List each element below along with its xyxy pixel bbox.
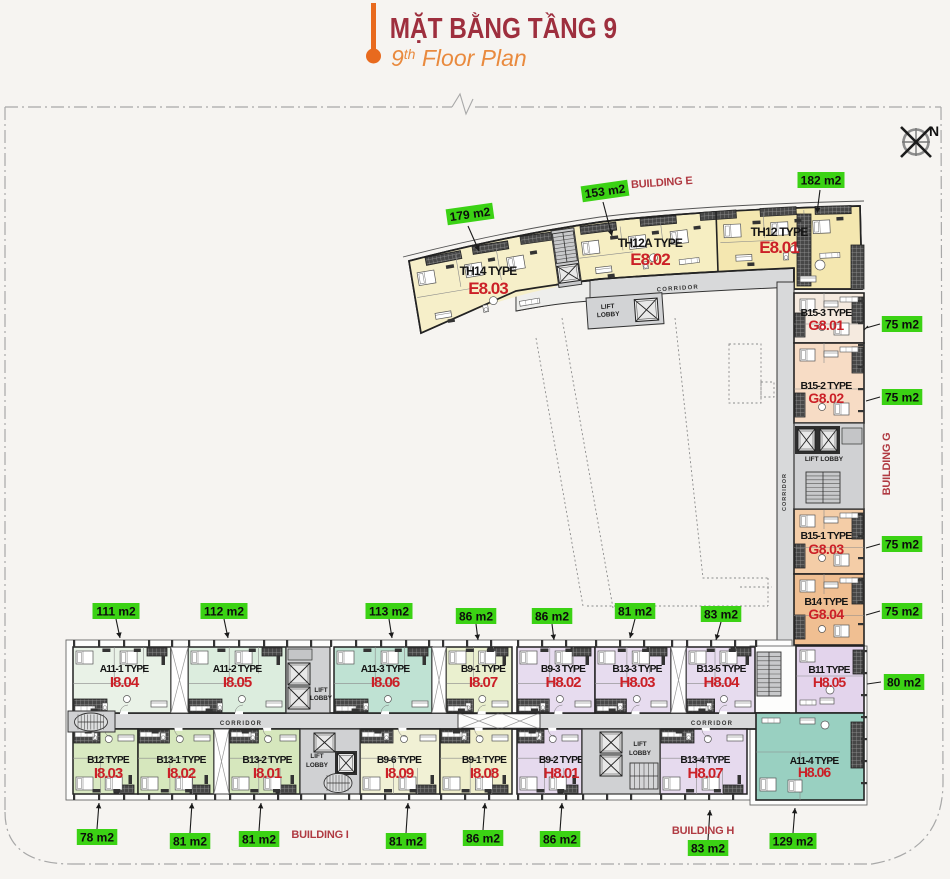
- svg-text:LIFT: LIFT: [310, 753, 323, 760]
- svg-text:78 m2: 78 m2: [80, 830, 114, 844]
- svg-text:H8.06: H8.06: [798, 764, 832, 780]
- svg-text:TH14 TYPE: TH14 TYPE: [460, 264, 518, 278]
- svg-text:LIFT: LIFT: [314, 687, 327, 694]
- svg-text:75 m2: 75 m2: [885, 537, 919, 551]
- svg-text:E8.02: E8.02: [630, 250, 670, 269]
- svg-text:E8.03: E8.03: [468, 279, 508, 298]
- svg-text:129 m2: 129 m2: [773, 834, 814, 848]
- svg-text:83 m2: 83 m2: [704, 607, 738, 621]
- svg-text:81 m2: 81 m2: [618, 604, 652, 618]
- svg-text:CORRIDOR: CORRIDOR: [220, 721, 262, 727]
- svg-text:H8.04: H8.04: [703, 674, 740, 691]
- svg-text:111 m2: 111 m2: [96, 604, 136, 618]
- svg-text:80 m2: 80 m2: [887, 675, 921, 689]
- svg-text:H8.05: H8.05: [813, 674, 847, 690]
- svg-text:I8.02: I8.02: [167, 765, 196, 782]
- svg-text:I8.06: I8.06: [371, 674, 400, 691]
- svg-text:I8.07: I8.07: [469, 674, 498, 691]
- svg-text:H8.03: H8.03: [619, 674, 655, 691]
- svg-text:LIFT LOBBY: LIFT LOBBY: [805, 456, 844, 463]
- svg-text:MẶT BẰNG TẦNG 9: MẶT BẰNG TẦNG 9: [390, 11, 617, 45]
- svg-text:H8.01: H8.01: [543, 765, 579, 782]
- svg-text:H8.07: H8.07: [687, 765, 723, 782]
- svg-text:I8.09: I8.09: [385, 765, 414, 782]
- svg-text:I8.05: I8.05: [223, 674, 252, 691]
- svg-text:TH12A TYPE: TH12A TYPE: [618, 236, 683, 250]
- svg-text:LOBBY: LOBBY: [310, 695, 333, 702]
- svg-text:G8.03: G8.03: [808, 541, 844, 557]
- svg-text:G8.02: G8.02: [808, 390, 844, 406]
- svg-text:75 m2: 75 m2: [885, 604, 919, 618]
- svg-text:N: N: [929, 123, 939, 139]
- svg-text:86 m2: 86 m2: [535, 609, 569, 623]
- svg-text:81 m2: 81 m2: [389, 834, 423, 848]
- svg-text:86 m2: 86 m2: [459, 609, 493, 623]
- svg-text:LOBBY: LOBBY: [306, 762, 329, 769]
- svg-text:G8.04: G8.04: [808, 606, 844, 622]
- svg-text:LIFT: LIFT: [601, 303, 615, 311]
- svg-text:LIFT: LIFT: [633, 741, 646, 748]
- svg-text:G8.01: G8.01: [808, 317, 844, 333]
- svg-text:E8.01: E8.01: [759, 238, 799, 257]
- svg-text:113 m2: 113 m2: [369, 604, 409, 618]
- svg-text:182 m2: 182 m2: [801, 173, 842, 187]
- svg-text:75 m2: 75 m2: [885, 390, 919, 404]
- svg-text:75 m2: 75 m2: [885, 317, 919, 331]
- svg-text:BUILDING G: BUILDING G: [881, 433, 893, 496]
- svg-text:86 m2: 86 m2: [466, 831, 500, 845]
- svg-text:BUILDING I: BUILDING I: [291, 829, 348, 841]
- svg-text:H8.02: H8.02: [545, 674, 581, 691]
- svg-text:CORRIDOR: CORRIDOR: [782, 473, 788, 511]
- svg-text:I8.01: I8.01: [253, 765, 282, 782]
- svg-text:TH12 TYPE: TH12 TYPE: [751, 225, 809, 239]
- svg-text:83 m2: 83 m2: [691, 841, 725, 855]
- svg-text:BUILDING H: BUILDING H: [672, 825, 734, 837]
- svg-text:I8.08: I8.08: [470, 765, 499, 782]
- svg-text:LOBBY: LOBBY: [629, 750, 652, 757]
- svg-text:I8.04: I8.04: [110, 674, 140, 691]
- svg-text:81 m2: 81 m2: [242, 832, 276, 846]
- svg-text:86 m2: 86 m2: [543, 832, 577, 846]
- svg-text:112 m2: 112 m2: [204, 604, 244, 618]
- svg-text:81 m2: 81 m2: [173, 834, 207, 848]
- svg-text:I8.03: I8.03: [94, 765, 123, 782]
- svg-text:CORRIDOR: CORRIDOR: [691, 721, 733, 727]
